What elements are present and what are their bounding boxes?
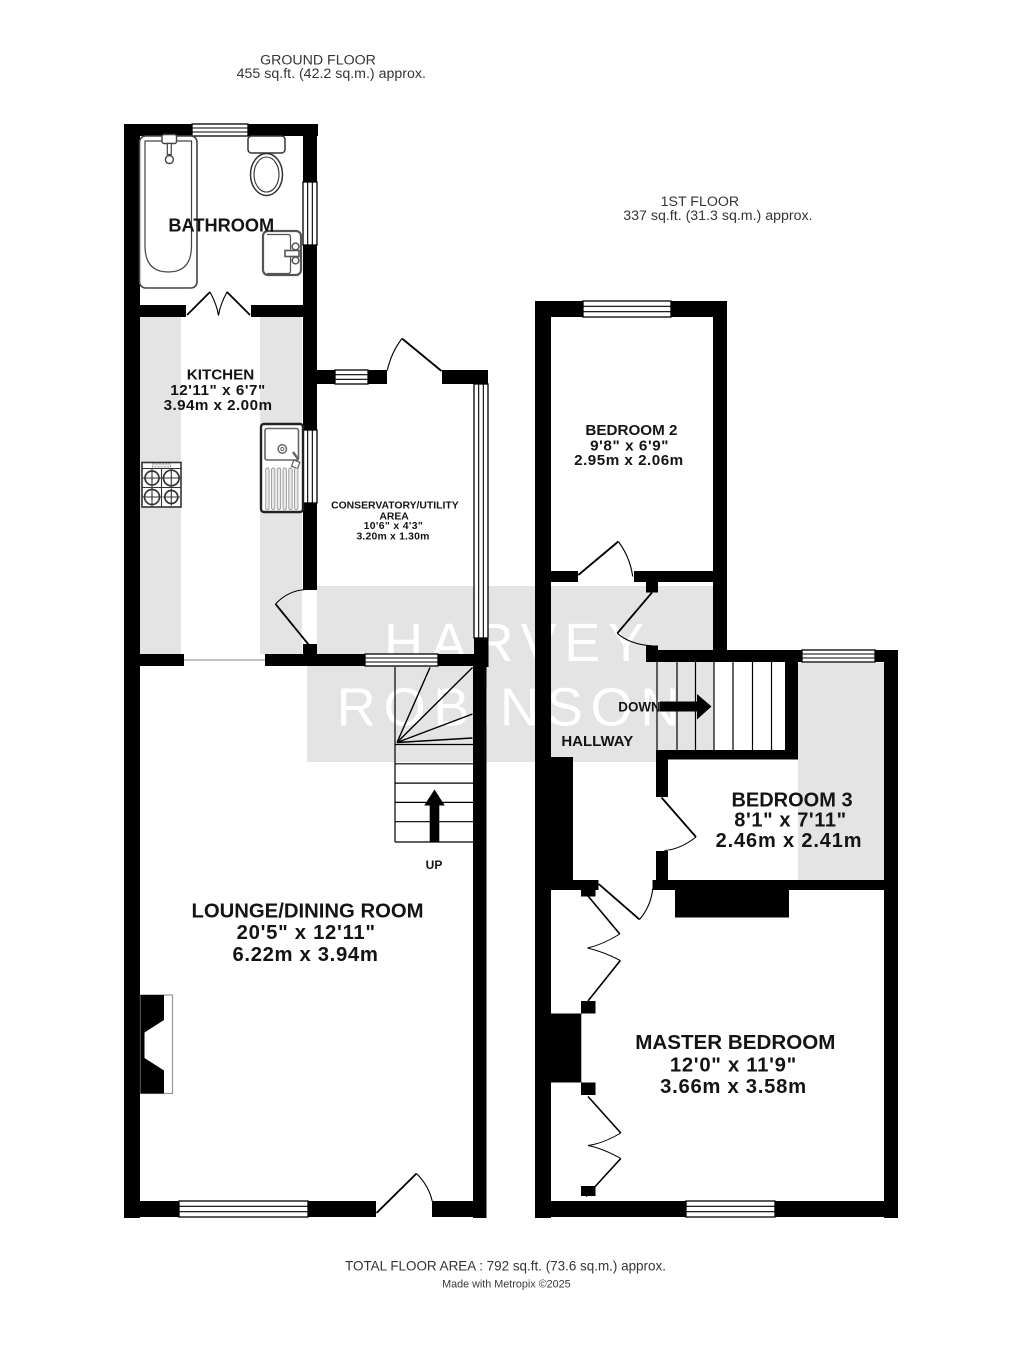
svg-text:6.22m x 3.94m: 6.22m x 3.94m — [232, 944, 378, 966]
svg-text:CONSERVATORY/UTILITY: CONSERVATORY/UTILITY — [331, 501, 459, 512]
svg-text:20'5" x 12'11": 20'5" x 12'11" — [237, 922, 376, 944]
svg-text:455 sq.ft. (42.2 sq.m.) approx: 455 sq.ft. (42.2 sq.m.) approx. — [237, 66, 426, 82]
svg-text:12'0" x 11'9": 12'0" x 11'9" — [670, 1055, 797, 1077]
svg-text:Made with Metropix ©2025: Made with Metropix ©2025 — [442, 1279, 571, 1291]
svg-text:MASTER BEDROOM: MASTER BEDROOM — [635, 1031, 835, 1054]
svg-text:337 sq.ft. (31.3 sq.m.) approx: 337 sq.ft. (31.3 sq.m.) approx. — [623, 208, 812, 224]
svg-text:TOTAL FLOOR AREA : 792 sq.ft.: TOTAL FLOOR AREA : 792 sq.ft. (73.6 sq.m… — [345, 1259, 666, 1274]
svg-text:UP: UP — [426, 858, 443, 872]
svg-text:BATHROOM: BATHROOM — [168, 215, 274, 235]
svg-text:3.66m x 3.58m: 3.66m x 3.58m — [660, 1076, 807, 1098]
svg-text:8'1" x 7'11": 8'1" x 7'11" — [734, 809, 846, 831]
svg-text:3.20m x 1.30m: 3.20m x 1.30m — [356, 532, 429, 543]
svg-text:10'6" x 4'3": 10'6" x 4'3" — [364, 521, 423, 532]
svg-text:HALLWAY: HALLWAY — [561, 733, 633, 750]
svg-text:DOWN: DOWN — [618, 700, 660, 715]
svg-text:LOUNGE/DINING ROOM: LOUNGE/DINING ROOM — [191, 901, 423, 923]
svg-text:3.94m x 2.00m: 3.94m x 2.00m — [164, 397, 273, 414]
svg-text:2.95m x 2.06m: 2.95m x 2.06m — [574, 452, 684, 469]
svg-text:BEDROOM 3: BEDROOM 3 — [731, 790, 852, 812]
svg-text:2.46m x 2.41m: 2.46m x 2.41m — [716, 830, 863, 852]
